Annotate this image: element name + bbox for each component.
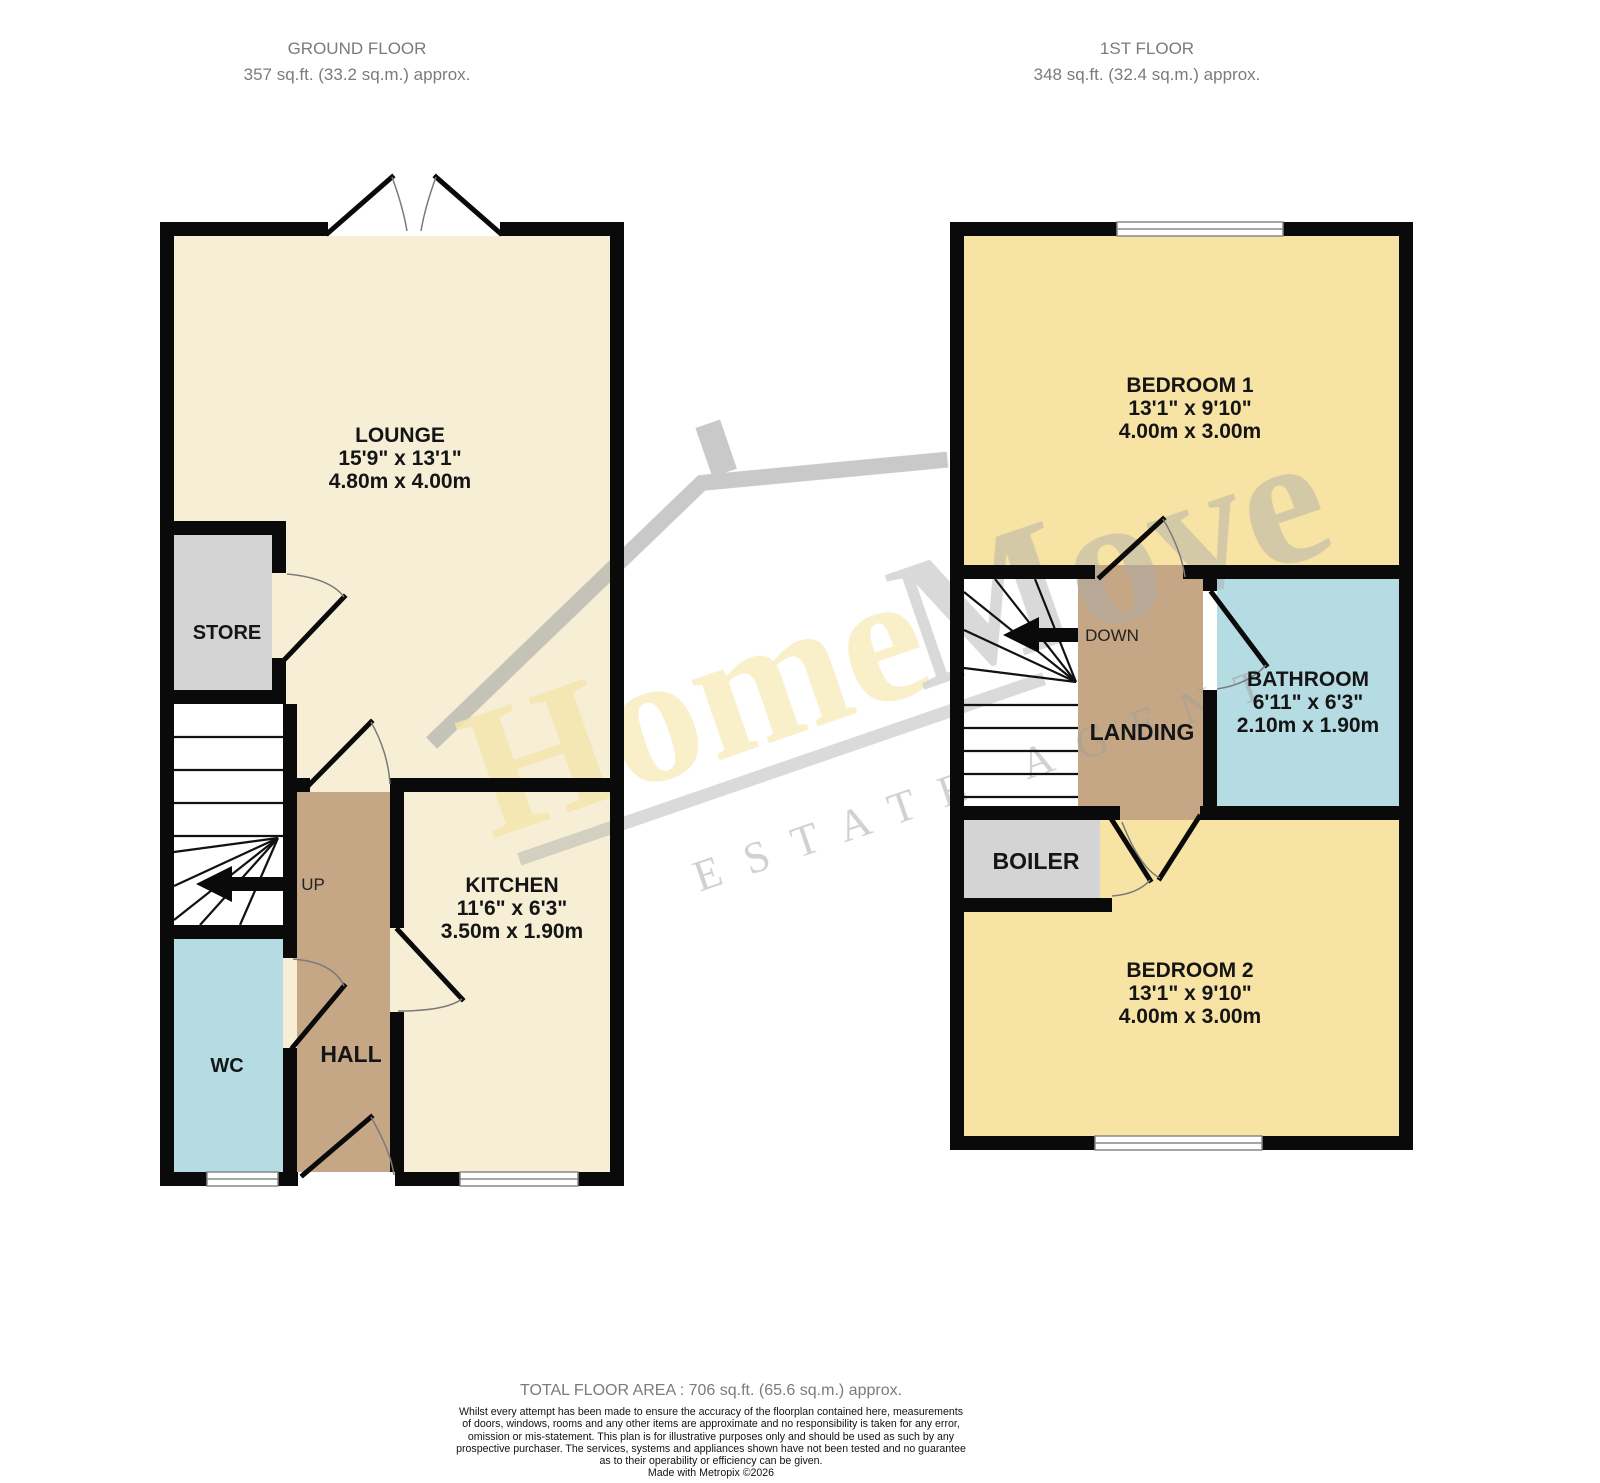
lounge-name: LOUNGE (355, 424, 445, 447)
kitchen-metric: 3.50m x 1.90m (441, 920, 583, 943)
kitchen-imperial: 11'6" x 6'3" (457, 897, 568, 920)
bedroom1-metric: 4.00m x 3.00m (1119, 420, 1261, 443)
landing-door-gap2 (1120, 806, 1200, 820)
bedroom1-imperial: 13'1" x 9'10" (1128, 397, 1251, 420)
floorplan-page: GROUND FLOOR 357 sq.ft. (33.2 sq.m.) app… (0, 0, 1600, 1483)
floorplan-drawing: Home Move ESTATE AGENT (0, 0, 1600, 1483)
hall-label: HALL (320, 1041, 381, 1067)
hall-floor-area (297, 792, 390, 1172)
boiler-label: BOILER (993, 848, 1080, 874)
up-label: UP (301, 875, 325, 894)
wc-label: WC (210, 1055, 243, 1077)
ground-floor-windows (207, 1172, 578, 1186)
bedroom1-name: BEDROOM 1 (1126, 374, 1254, 397)
french-door-left (328, 177, 392, 233)
bathroom-imperial: 6'11" x 6'3" (1253, 691, 1364, 714)
disclaimer-line: omission or mis-statement. This plan is … (311, 1431, 1111, 1443)
disclaimer: Whilst every attempt has been made to en… (311, 1406, 1111, 1480)
bedroom2-metric: 4.00m x 3.00m (1119, 1005, 1261, 1028)
disclaimer-line: Whilst every attempt has been made to en… (311, 1406, 1111, 1418)
bedroom2-name: BEDROOM 2 (1126, 959, 1253, 982)
watermark-chimney-icon (695, 419, 737, 477)
disclaimer-line: of doors, windows, rooms and any other i… (311, 1418, 1111, 1430)
lounge-metric: 4.80m x 4.00m (329, 470, 471, 493)
landing-label: LANDING (1090, 719, 1195, 745)
metropix-credit: Made with Metropix ©2026 (311, 1467, 1111, 1479)
bathroom-name: BATHROOM (1247, 668, 1369, 691)
disclaimer-line: prospective purchaser. The services, sys… (311, 1443, 1111, 1455)
bathroom-metric: 2.10m x 1.90m (1237, 714, 1379, 737)
bedroom2-imperial: 13'1" x 9'10" (1128, 982, 1251, 1005)
total-floor-area: TOTAL FLOOR AREA : 706 sq.ft. (65.6 sq.m… (311, 1382, 1111, 1400)
down-label: DOWN (1085, 626, 1139, 645)
store-floor-area (174, 535, 272, 690)
kitchen-name: KITCHEN (465, 874, 558, 897)
french-door-right (436, 177, 500, 233)
lounge-imperial: 15'9" x 13'1" (338, 447, 461, 470)
disclaimer-line: as to their operability or efficiency ca… (311, 1455, 1111, 1467)
store-label: STORE (193, 622, 262, 644)
